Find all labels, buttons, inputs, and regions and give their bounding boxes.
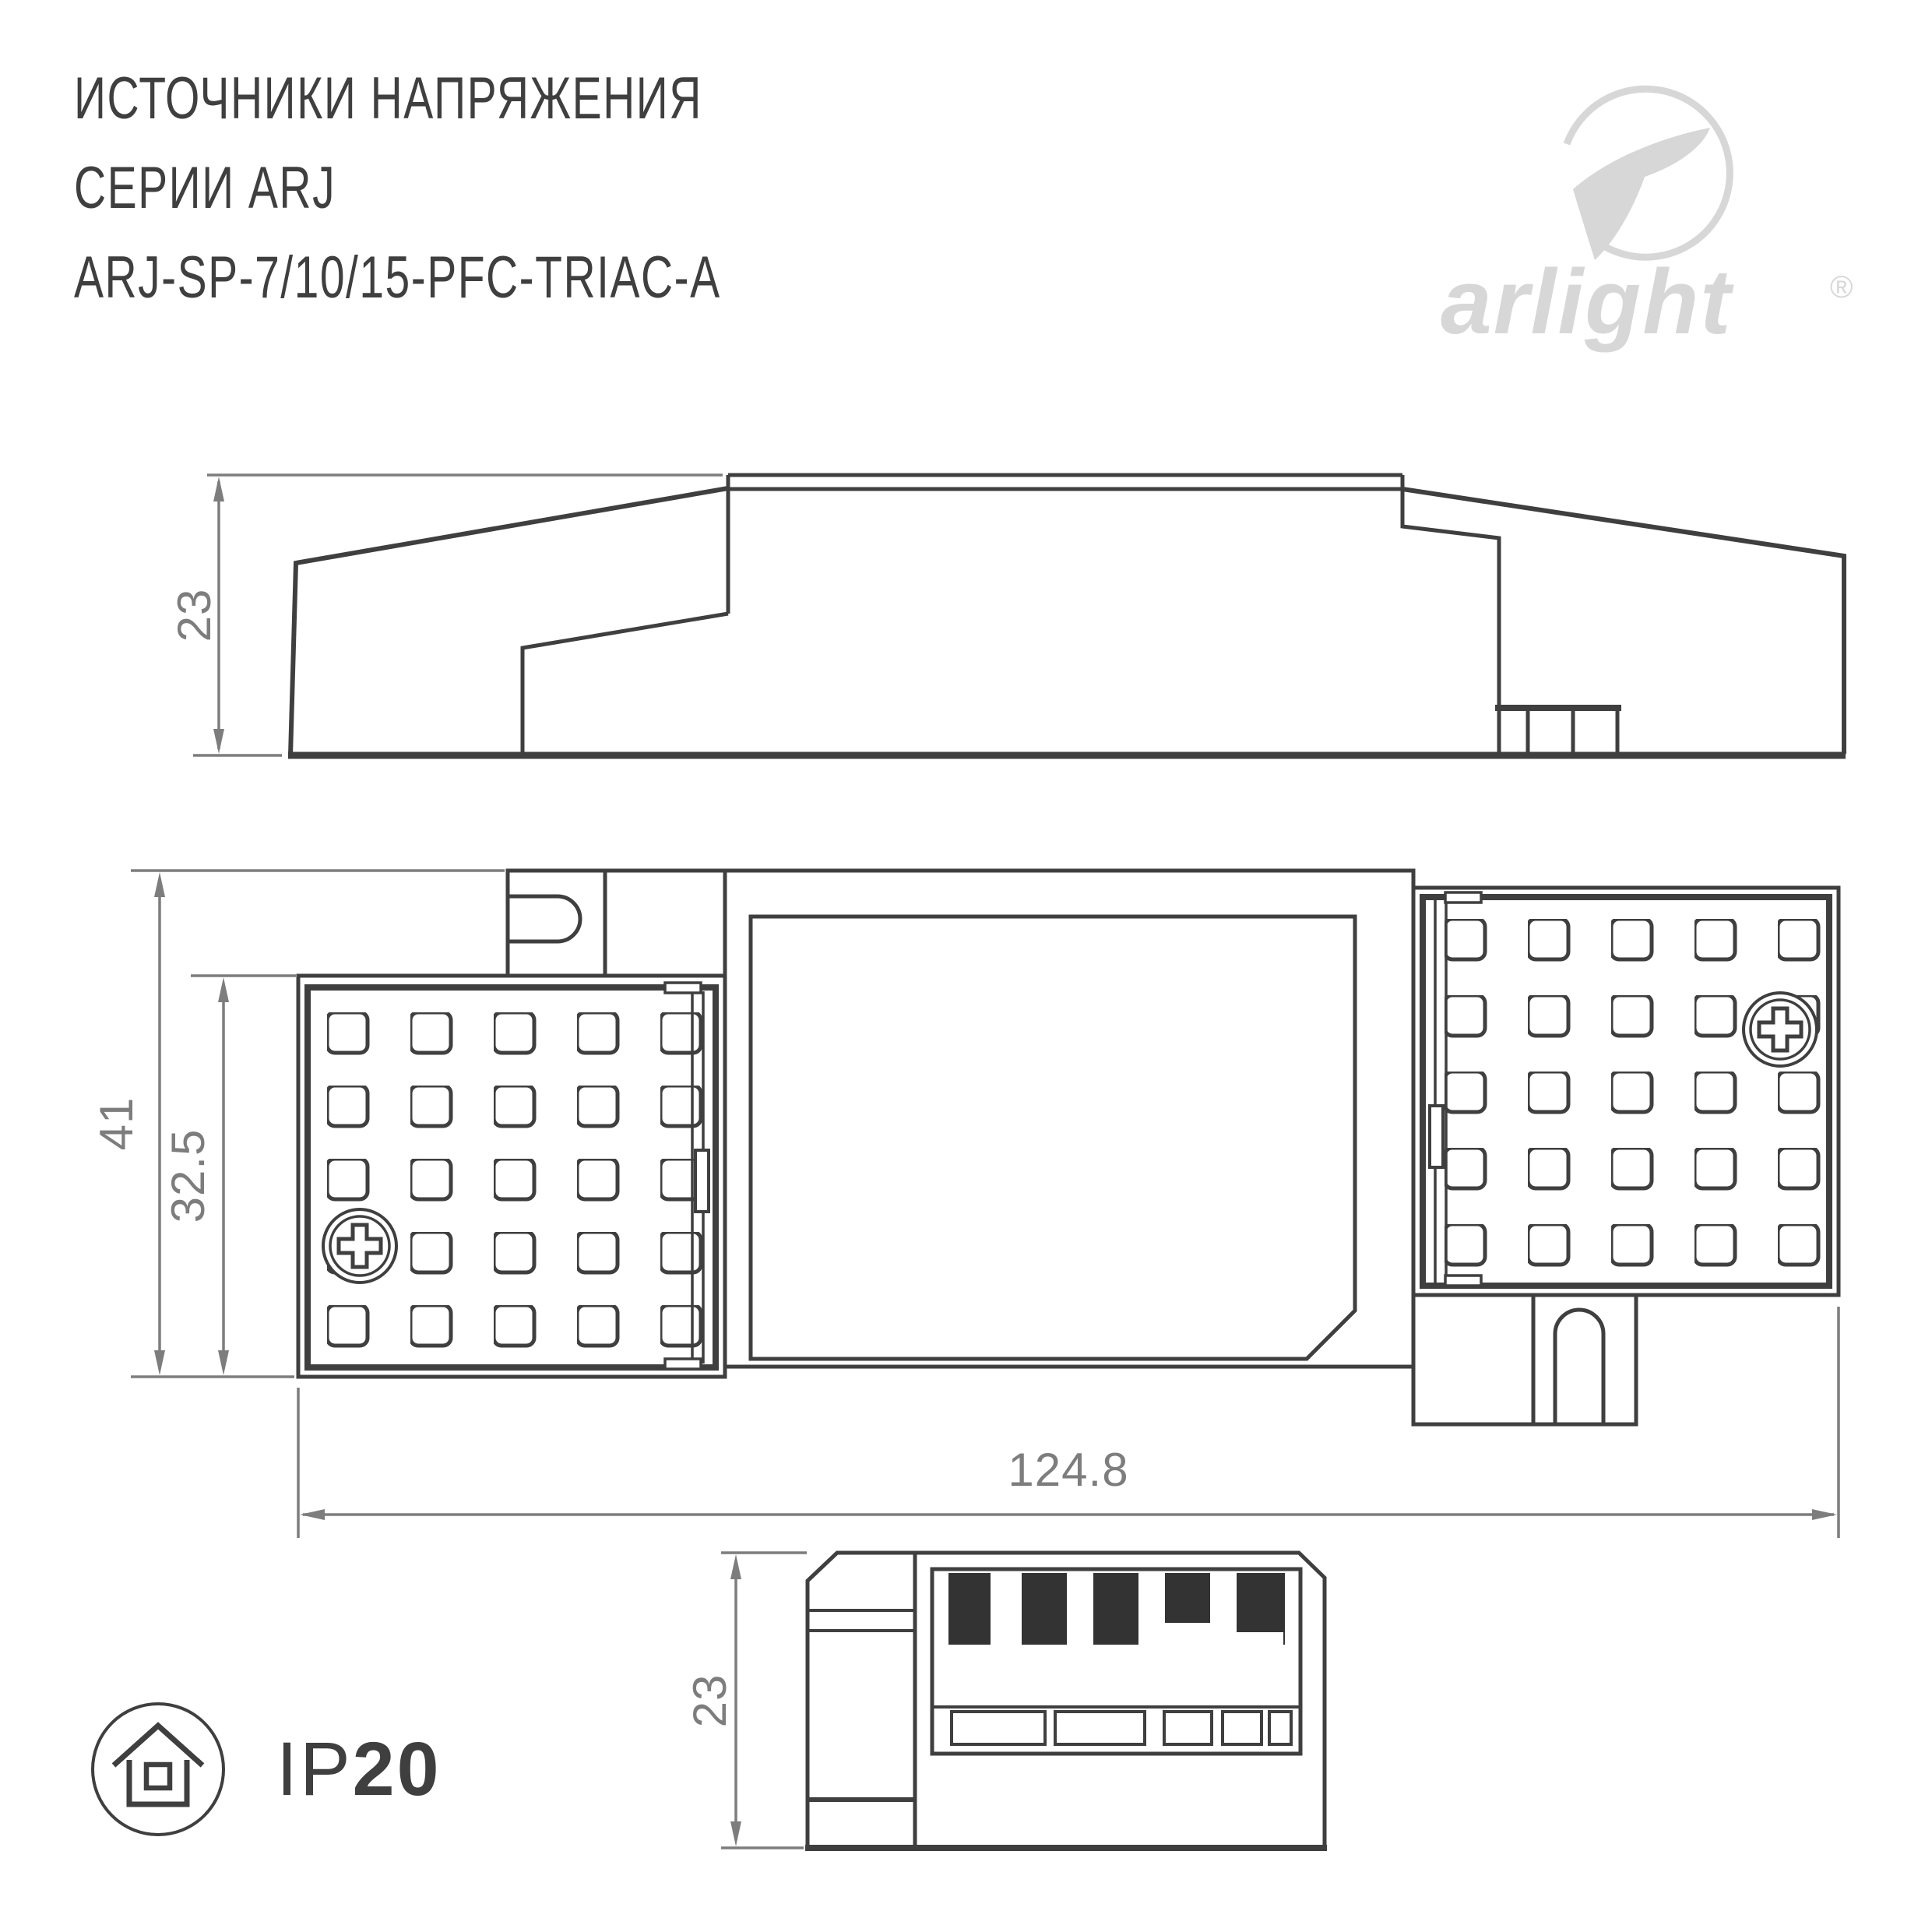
brand-logo: arlight ® (1441, 89, 1853, 354)
side-view-drawing: 23 (168, 475, 1846, 755)
mounting-tab-top-left (508, 871, 725, 976)
dimension-label: 23 (168, 589, 220, 642)
ip-value: 20 (353, 1726, 442, 1811)
technical-drawing-canvas: ИСТОЧНИКИ НАПРЯЖЕНИЯ СЕРИИ ARJ ARJ-SP-7/… (0, 0, 1932, 1932)
side-height-dimension: 23 (168, 475, 723, 755)
dimension-label: 41 (90, 1097, 143, 1151)
plan-center-body (725, 871, 1413, 1367)
dimension-label: 32.5 (162, 1129, 214, 1223)
dimension-label: 124.8 (1008, 1444, 1128, 1496)
side-connector-block (1499, 708, 1617, 754)
house-window (146, 1765, 170, 1788)
vent-grid (1441, 916, 1821, 1268)
house-roof (114, 1726, 202, 1765)
plan-cover-height-dimension: 32.5 (162, 976, 296, 1375)
vent-grid (324, 1009, 704, 1349)
registered-mark: ® (1830, 270, 1853, 304)
terminal-block (932, 1569, 1300, 1754)
ip-prefix: IP (276, 1726, 353, 1811)
mounting-tab-bottom-right (1413, 1295, 1636, 1424)
left-vent-cover (308, 983, 716, 1369)
title-block: ИСТОЧНИКИ НАПРЯЖЕНИЯ СЕРИИ ARJ ARJ-SP-7/… (74, 65, 721, 311)
end-height-dimension: 23 (684, 1553, 807, 1848)
arlight-swoosh-icon (1573, 128, 1710, 260)
mounting-slot (1555, 1310, 1603, 1424)
dimension-label: 23 (684, 1674, 736, 1728)
house-in-circle-icon (93, 1704, 223, 1835)
plan-label-area (751, 917, 1355, 1359)
title-line-2: СЕРИИ ARJ (74, 155, 336, 221)
mounting-slot (508, 896, 580, 941)
logo-wordmark: arlight (1441, 251, 1734, 354)
title-line-3-model: ARJ-SP-7/10/15-PFC-TRIAC-A (74, 245, 721, 311)
end-view-drawing: 23 (684, 1553, 1327, 1848)
plan-view-drawing: 41 32.5 124.8 (90, 871, 1839, 1538)
cover-latch (1430, 1106, 1443, 1167)
ip-rating-badge: IP20 (93, 1704, 442, 1835)
screw-icon (323, 1209, 396, 1283)
screw-icon (1744, 993, 1817, 1066)
right-vent-cover (1423, 892, 1829, 1286)
title-line-1: ИСТОЧНИКИ НАПРЯЖЕНИЯ (74, 65, 702, 132)
ip-rating-label: IP20 (276, 1726, 442, 1811)
cover-latch (695, 1150, 709, 1212)
